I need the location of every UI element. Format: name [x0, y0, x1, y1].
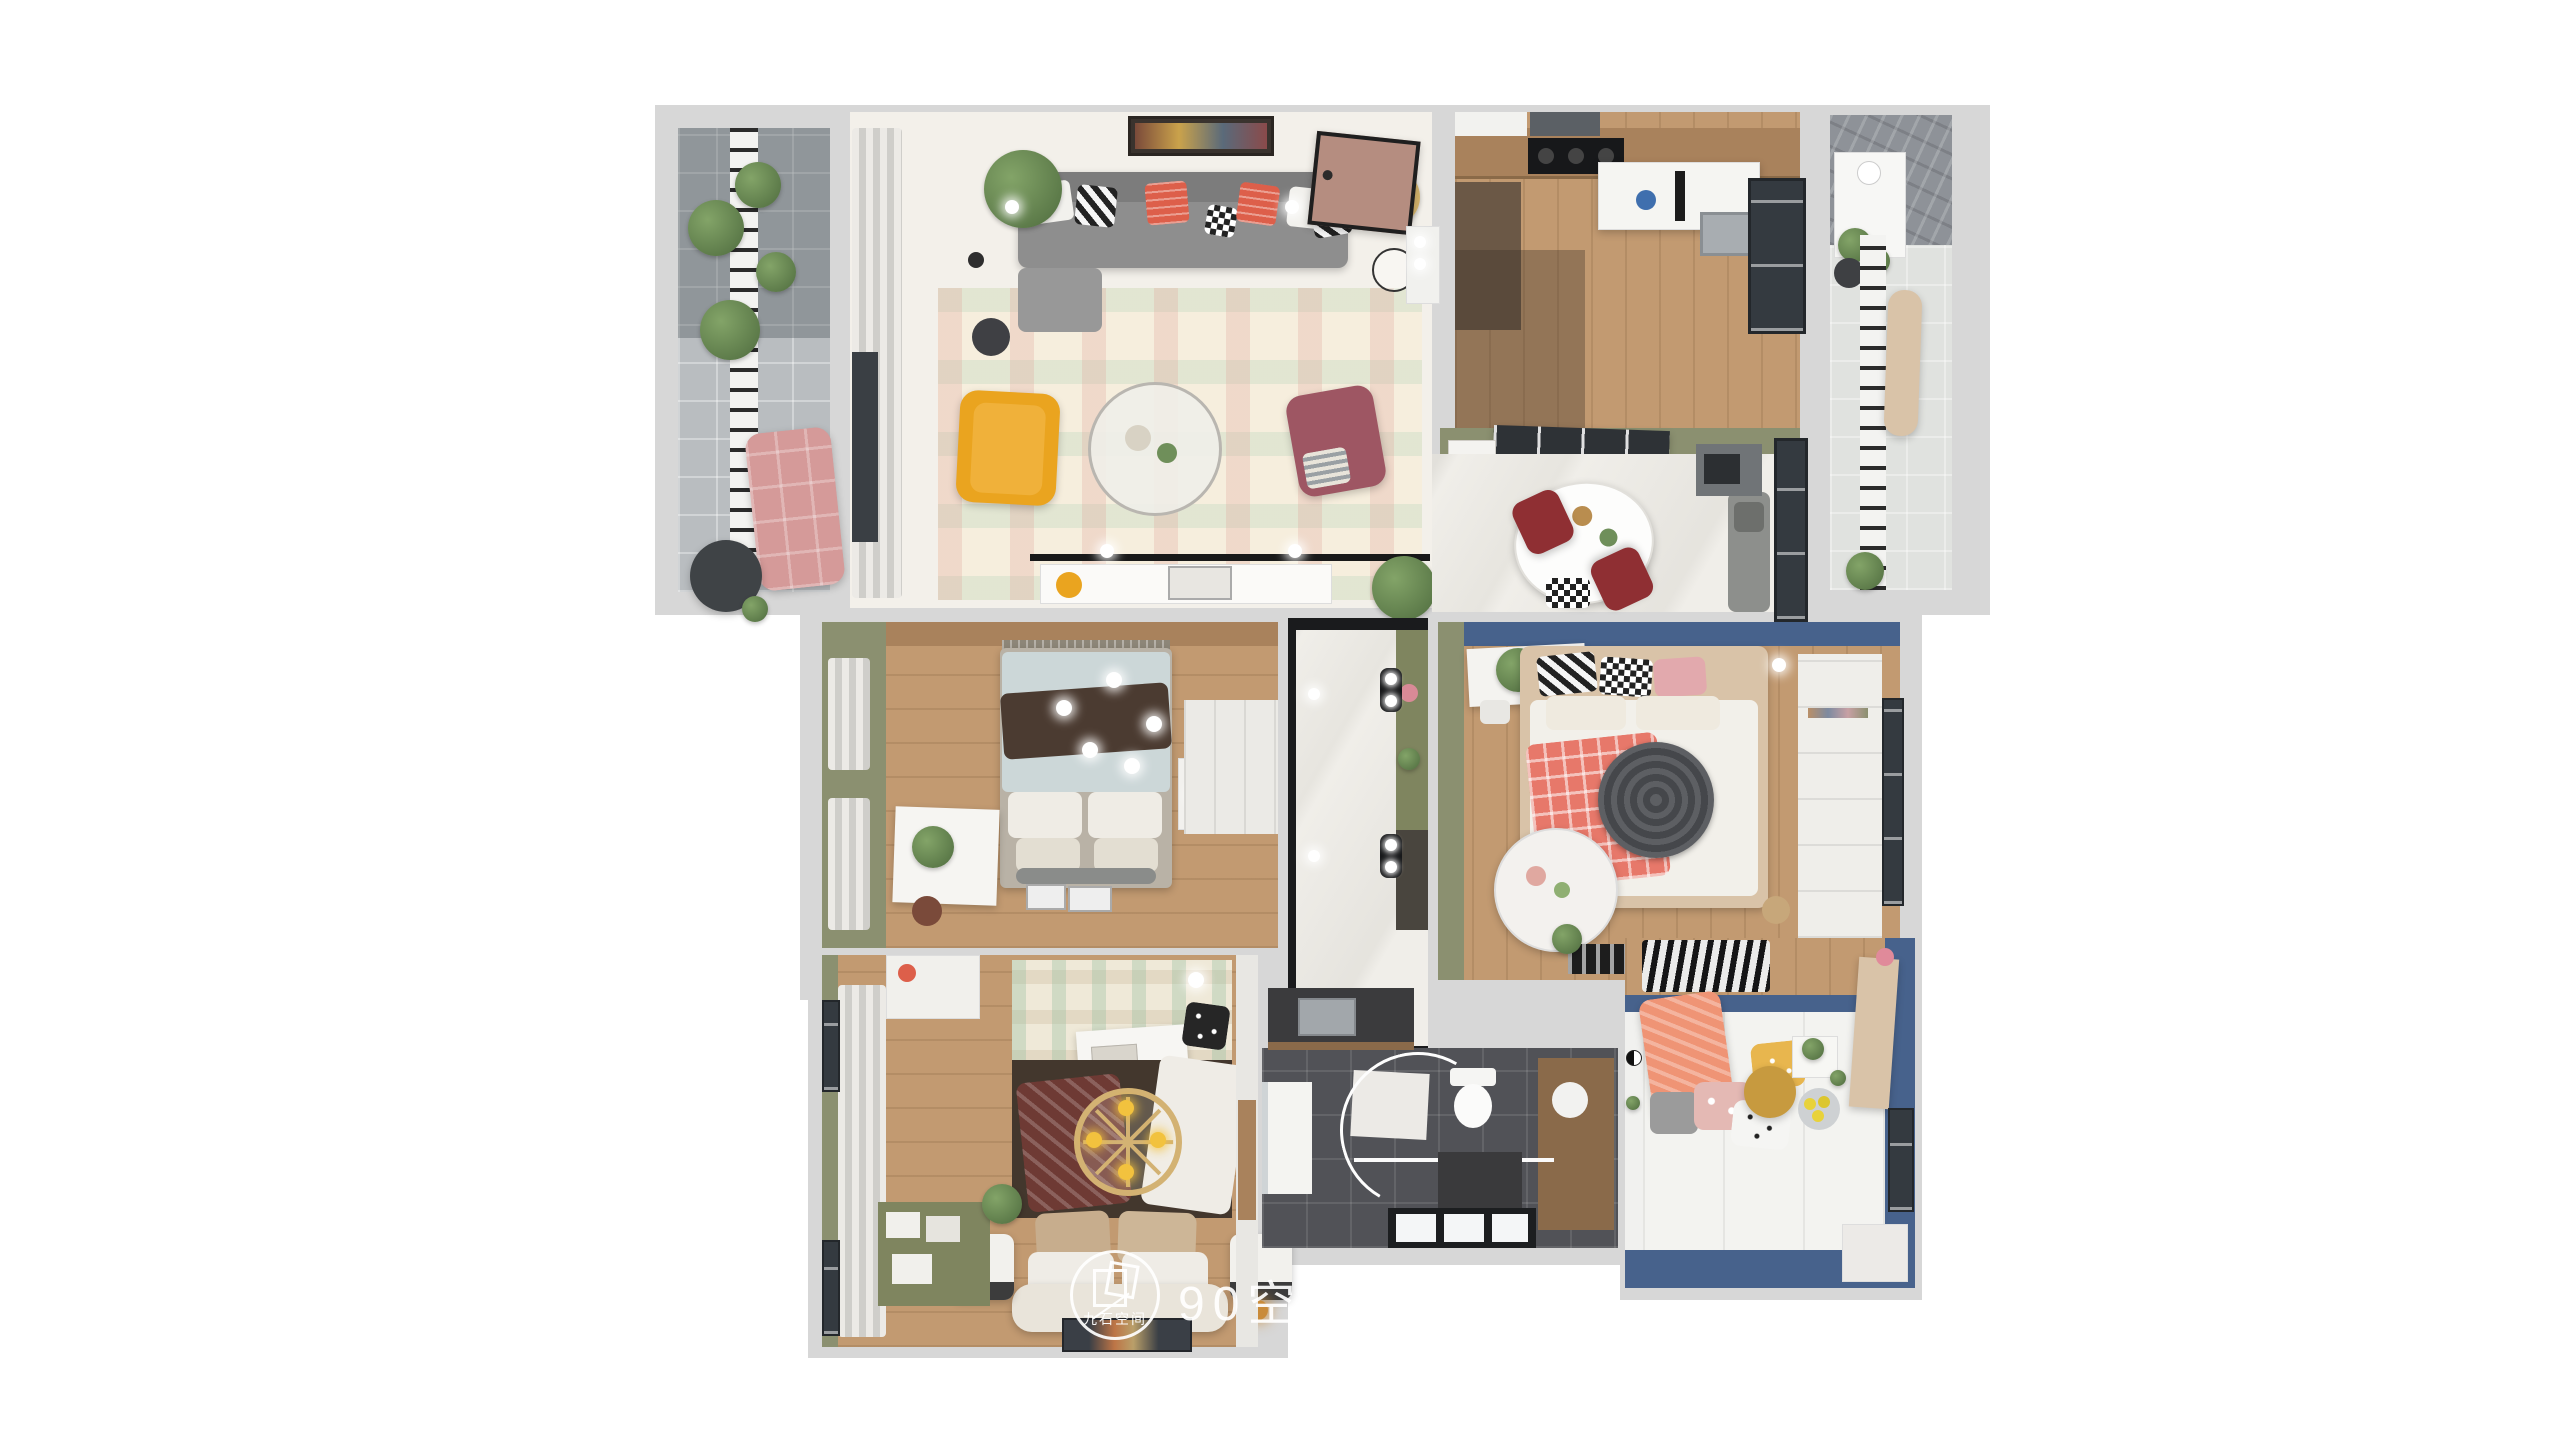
- master-pillow-4: [1094, 838, 1158, 872]
- pillow-coral-1: [1144, 180, 1190, 226]
- bedroom2-olive-wall: [1438, 622, 1464, 980]
- bedroom2-pillow-cream-2: [1636, 696, 1720, 730]
- living-plant-tall: [984, 150, 1062, 228]
- mauve-armchair-throw: [1302, 447, 1352, 490]
- bedroom2-chair: [1480, 700, 1510, 724]
- living-balcony-window: [852, 352, 878, 542]
- yin-yang-plate: [1626, 1050, 1642, 1066]
- master-chandelier-bulb-2: [1106, 672, 1122, 688]
- balcony-plant-5: [742, 596, 768, 622]
- coffee-table-plant: [1157, 443, 1177, 463]
- yellow-armchair: [955, 389, 1061, 506]
- balcony-plant-4: [756, 252, 796, 292]
- master-curtain-2: [828, 798, 870, 930]
- microwave: [1704, 454, 1740, 484]
- hall-marble-strip: [1288, 630, 1296, 1050]
- zebra-rug: [1642, 940, 1770, 992]
- watermark-brand-text: 90空间设计工: [1178, 1264, 1527, 1334]
- bedroom2-pillow-pink: [1653, 656, 1708, 698]
- entry-light-1: [1414, 236, 1426, 248]
- sofa-chaise: [1018, 268, 1102, 332]
- fruit-bowl: [1056, 572, 1082, 598]
- laundry-sink: [1298, 998, 1356, 1036]
- watermark-logo-frame-inner: [1104, 1261, 1139, 1300]
- entry-light-2: [1414, 258, 1426, 270]
- ceiling-light-2: [1285, 200, 1299, 214]
- tv-plant: [1372, 556, 1436, 620]
- storage-box-1: [886, 1212, 920, 1238]
- bedroom3-plant: [982, 1184, 1022, 1224]
- master-curtain-1: [828, 658, 870, 770]
- water-jug: [1636, 190, 1656, 210]
- burner-2: [1568, 148, 1584, 164]
- leaning-frames: [1168, 566, 1232, 600]
- hall-spot-1: [1308, 688, 1320, 700]
- master-bed: [1000, 648, 1172, 888]
- tatami-shelf-plant: [1626, 1096, 1640, 1110]
- hall-downlight-2: [1380, 834, 1402, 878]
- hall-spot-2: [1308, 850, 1320, 862]
- tatami-shelf: [1625, 1012, 1643, 1250]
- bedroom3-storage: [878, 1202, 990, 1306]
- master-bolster: [1016, 868, 1156, 884]
- floor-frame-1: [1026, 884, 1066, 910]
- lemon-3: [1812, 1110, 1824, 1122]
- master-pillow-3: [1016, 838, 1080, 872]
- bedroom3-window-2: [822, 1240, 840, 1336]
- vanity-stool: [912, 896, 942, 926]
- master-chandelier-bulb-1: [1056, 700, 1072, 716]
- bath-mirror: [1262, 1082, 1268, 1194]
- watermark-logo-icon: 九石空间: [1070, 1250, 1160, 1340]
- dining-cabinet: [1696, 444, 1762, 496]
- yellow-armchair-seat: [970, 402, 1047, 496]
- black-side-table: [972, 318, 1010, 356]
- balcony-plant-3: [700, 300, 760, 360]
- master-pillow-2: [1088, 792, 1162, 838]
- bedroom2-pendant: [1772, 658, 1786, 672]
- master-wardrobe: [1184, 700, 1278, 834]
- tatami-pillow-gray: [1650, 1092, 1698, 1134]
- lemon-1: [1804, 1098, 1816, 1110]
- toilet: [1446, 1068, 1500, 1128]
- bedroom2-window: [1882, 698, 1904, 906]
- dining-plate-2: [1571, 505, 1594, 528]
- tv: [1030, 554, 1430, 561]
- tatami-plant-2: [1830, 1070, 1846, 1086]
- teddy-bear: [1762, 896, 1790, 924]
- master-pillow-1: [1008, 792, 1082, 838]
- bath-sink: [1552, 1082, 1588, 1118]
- floor-frame-2: [1068, 886, 1112, 912]
- round-table-flowers-2: [1554, 882, 1570, 898]
- apartment-floor-plan: 九石空间 90空间设计工: [0, 0, 2560, 1440]
- bedroom2-wardrobe: [1798, 654, 1882, 938]
- bath-window-pane-2: [1444, 1214, 1484, 1242]
- bedroom3-window-1: [822, 1000, 840, 1092]
- hall-plant: [1398, 748, 1420, 770]
- ceiling-light-3: [1100, 544, 1114, 558]
- dining-window: [1774, 438, 1808, 622]
- balcony-plant-1: [688, 200, 744, 256]
- bedroom2-floor-plant: [1552, 924, 1582, 954]
- coffee-table-decor: [1125, 425, 1151, 451]
- master-chandelier-bulb-5: [1124, 758, 1140, 774]
- wall-art: [1128, 116, 1274, 156]
- chandelier-bulb-1: [1118, 1100, 1134, 1116]
- door-handle: [1322, 170, 1333, 181]
- bedroom3-pendant: [1188, 972, 1204, 988]
- dining-bench: [1728, 492, 1770, 612]
- hall-cabinet: [1396, 630, 1428, 830]
- bedroom2-round-rug: [1598, 742, 1714, 858]
- gold-tray-table: [1744, 1066, 1796, 1118]
- floor-lamp: [968, 252, 984, 268]
- entry-door: [1307, 131, 1420, 235]
- master-chandelier-bulb-4: [1082, 742, 1098, 758]
- kitchen-window: [1748, 178, 1806, 334]
- bath-window-pane-3: [1492, 1214, 1528, 1242]
- tatami-step: [1842, 1224, 1908, 1282]
- bedroom3-wardrobe-door: [1238, 1100, 1256, 1220]
- ceiling-light-1: [1005, 200, 1019, 214]
- master-chandelier-bulb-3: [1146, 716, 1162, 732]
- vanity-plant: [912, 826, 954, 868]
- balcony-right-railing: [1860, 235, 1886, 590]
- pillow-diamond-1: [1074, 184, 1118, 228]
- bedroom2-blue-wall: [1464, 622, 1900, 646]
- hall-flowers: [1400, 684, 1418, 702]
- bench-pillow: [1734, 502, 1764, 532]
- ceiling-light-4: [1288, 544, 1302, 558]
- burner-1: [1538, 148, 1554, 164]
- storage-box-3: [892, 1254, 932, 1284]
- hall-threshold-top: [1288, 618, 1428, 630]
- bath-window-pane-1: [1396, 1214, 1436, 1242]
- bedroom3-star-pillow: [1181, 1001, 1231, 1051]
- lemon-bowl: [1798, 1088, 1840, 1130]
- mauve-armchair: [1284, 383, 1388, 499]
- bedroom2-pillow-striped: [1536, 651, 1598, 697]
- hanging-cushion: [1883, 289, 1922, 436]
- pillow-coral-2: [1235, 181, 1280, 226]
- tatami-pink-decor: [1876, 948, 1894, 966]
- wheel-chandelier: [1074, 1088, 1182, 1196]
- dining-plant: [1598, 527, 1618, 547]
- toilet-bowl: [1454, 1084, 1492, 1128]
- laundry-counter-edge: [1268, 1042, 1414, 1050]
- pillow-check: [1204, 204, 1239, 239]
- chandelier-bulb-2: [1086, 1132, 1102, 1148]
- bath-window: [1388, 1208, 1536, 1248]
- wall-art-print: [1135, 123, 1267, 149]
- kitchen-floor-shadow: [1455, 250, 1585, 430]
- hanging-coat: [898, 964, 916, 982]
- lemon-2: [1818, 1096, 1830, 1108]
- coffee-table: [1088, 382, 1222, 516]
- hall-downlight-1: [1380, 668, 1402, 712]
- dining-stool: [1546, 578, 1590, 608]
- bedroom2-pillow-cream-1: [1546, 696, 1626, 730]
- range-hood: [1530, 112, 1600, 136]
- bath-vanity: [1266, 1082, 1312, 1194]
- balcony-plant-2: [735, 162, 781, 208]
- counter-figurine: [1857, 161, 1881, 185]
- balcony-right-plant-3: [1846, 552, 1884, 590]
- kitchen-tall-cabinet: [1455, 112, 1527, 136]
- tatami-window: [1888, 1108, 1914, 1212]
- chandelier-bulb-3: [1150, 1132, 1166, 1148]
- chandelier-bulb-4: [1118, 1164, 1134, 1180]
- wardrobe-clothes: [1808, 708, 1868, 718]
- island-handle: [1675, 171, 1685, 221]
- round-table-flowers-1: [1526, 866, 1546, 886]
- bedroom3-closet: [886, 955, 980, 1019]
- tatami-plant-1: [1802, 1038, 1824, 1060]
- bedroom2-pillow-checker: [1599, 656, 1654, 698]
- watermark-logo-text: 九石空间: [1073, 1309, 1157, 1329]
- storage-box-2: [926, 1216, 960, 1242]
